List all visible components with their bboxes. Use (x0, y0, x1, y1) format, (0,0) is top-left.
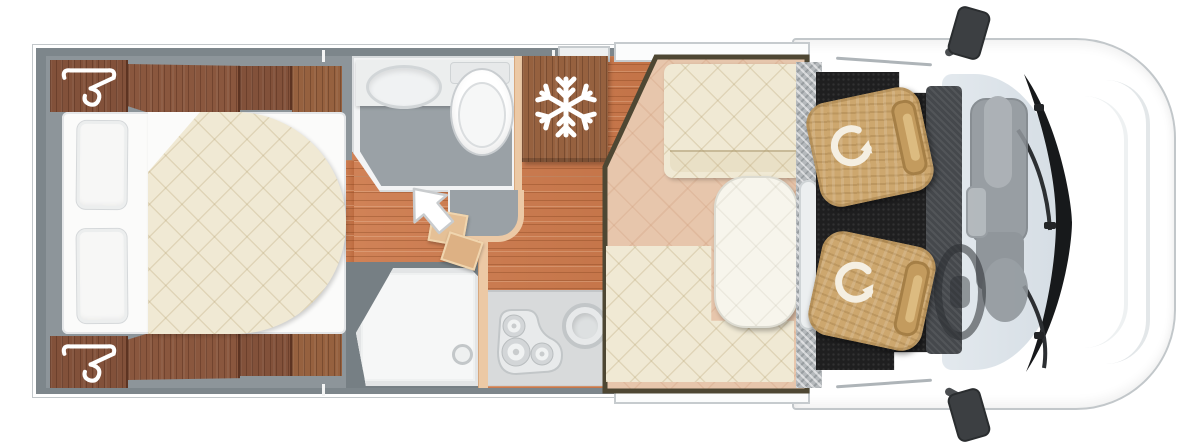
bench-cushion-seam (670, 150, 798, 172)
wardrobe-top (50, 60, 128, 112)
wardrobe-bottom (50, 336, 128, 388)
hood-shading-line (1084, 96, 1128, 348)
hob-3-burners (490, 302, 568, 378)
pillow (75, 228, 128, 325)
snowflake-icon (532, 73, 600, 141)
kitchen-sink-basin (572, 313, 598, 339)
pillow (76, 120, 129, 211)
washbasin (366, 65, 442, 109)
overhead-cabinet (240, 66, 292, 110)
motorhome-floorplan (0, 0, 1200, 444)
bathroom-partition-wall (514, 56, 522, 190)
overhead-cabinet (128, 64, 240, 112)
steering-hub (950, 276, 970, 308)
wall-seam (322, 50, 325, 62)
dinette-table (714, 176, 798, 328)
console-block (984, 96, 1012, 188)
gear-lever (966, 186, 988, 238)
hanger-icon (56, 339, 122, 385)
shower-drain (452, 344, 473, 365)
overhead-cabinet (240, 334, 292, 376)
swivel-arrow-icon (819, 117, 881, 179)
fridge-cabinet (522, 56, 608, 162)
hanger-icon (56, 63, 122, 109)
dinette-bench-front (664, 64, 804, 178)
toilet-seat (458, 82, 506, 148)
overhead-cabinet (128, 334, 240, 380)
console-dome (982, 258, 1028, 322)
wall-seam (322, 384, 325, 396)
swivel-arrow-icon (822, 253, 884, 315)
kitchen-partition-wall (478, 240, 488, 388)
